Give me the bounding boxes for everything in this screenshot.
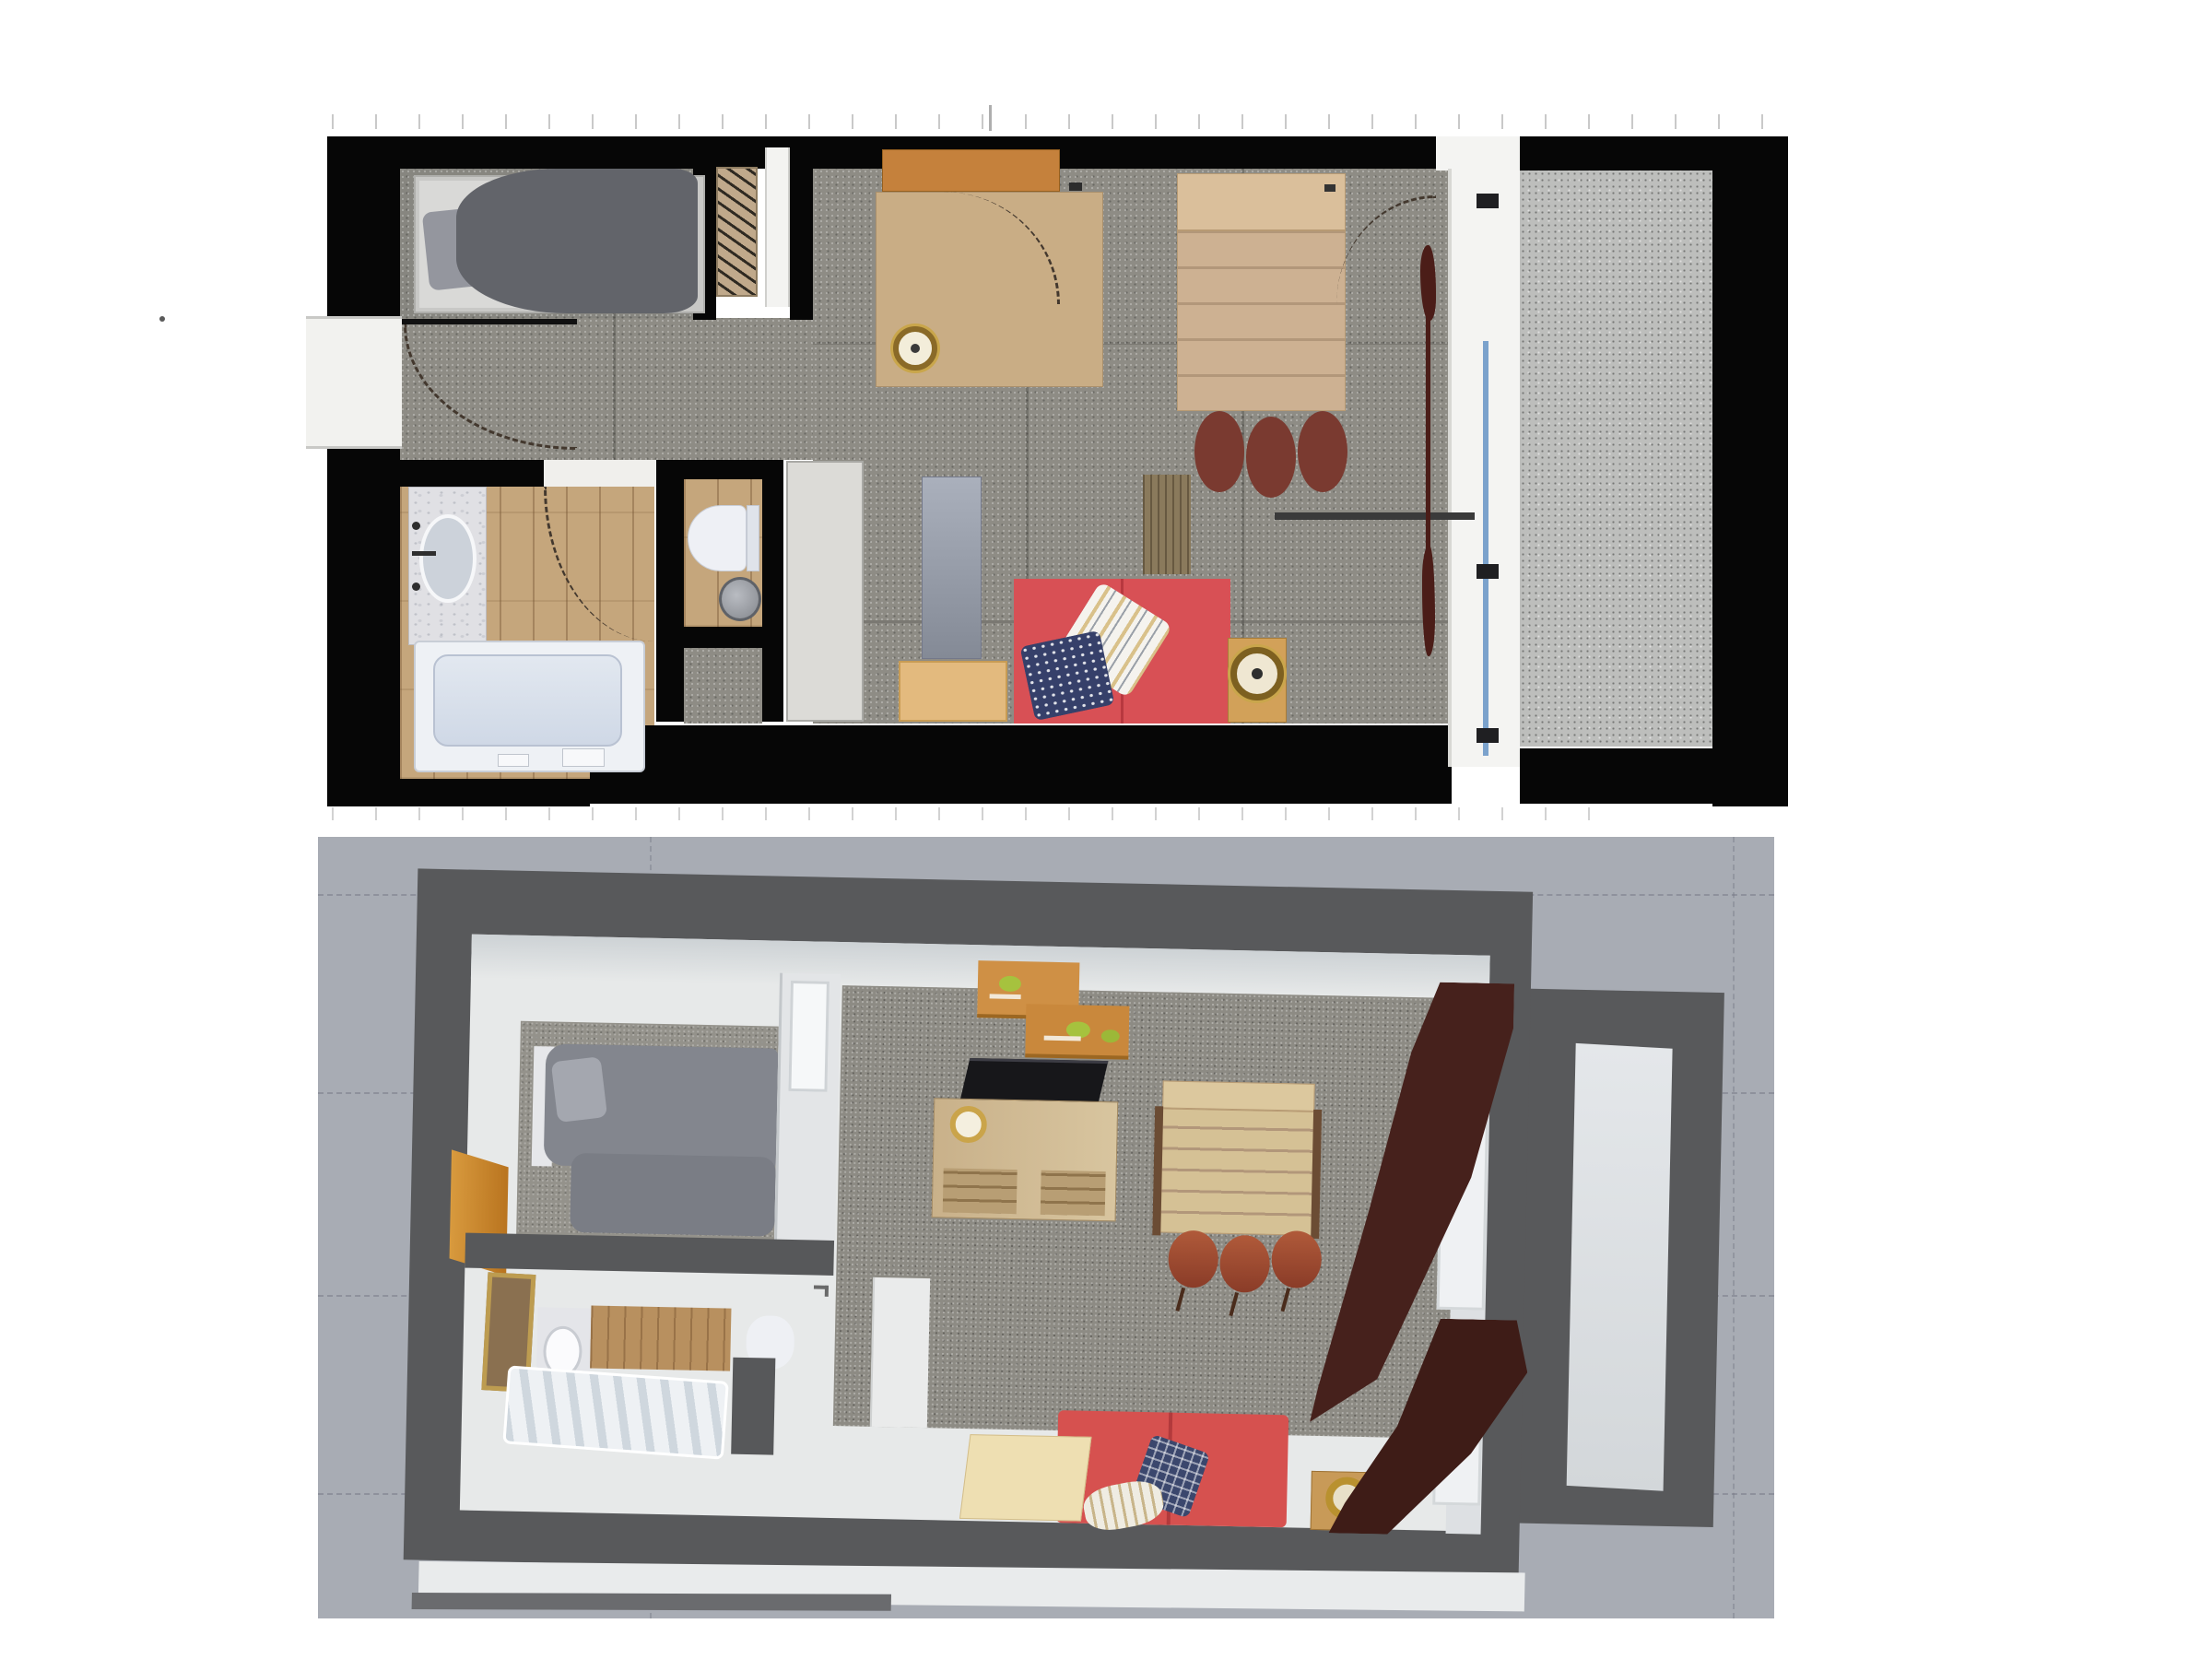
bathtub-3d [502,1365,729,1459]
bathroom-wall-top-left [400,460,544,487]
nook-notch-carpet [684,648,762,724]
door-handle-icon [1477,194,1499,208]
toilet-tank [747,505,759,571]
dining-table [1177,230,1346,411]
stool [1246,417,1296,498]
balcony-slab [1567,1043,1673,1491]
building-3d [0,809,2212,1659]
floor-plan-3d-view [0,829,2212,1659]
ceiling-mark [825,1286,829,1297]
coffee-table-3d [959,1434,1092,1522]
glass-line [1483,341,1488,756]
radiator [716,167,758,297]
bed-duvet-lower-3d [570,1153,776,1237]
stool [1298,411,1347,492]
bath-cabinet-3d [590,1305,731,1371]
brown-rug [1143,475,1191,574]
door-handle-icon [1477,564,1499,579]
vanity-sink [419,514,477,603]
toilet-nook-wall-bottom [662,627,783,648]
bathtub-basin [433,654,622,747]
stool [1194,411,1244,492]
wall-bottom-balcony [1520,748,1788,804]
faucet-handle [412,551,436,556]
left-wall-window [306,316,402,449]
coffee-table [899,661,1007,722]
curtain-line [1426,313,1430,553]
plant-3d [999,976,1021,992]
shelf-slot [990,994,1021,999]
desk-drawers-3d [1041,1171,1106,1216]
wall-bottom-living [590,725,1452,804]
wall-shelf [882,149,1060,192]
toilet-nook-wall-top [656,460,783,479]
balcony-glass-wall [1448,169,1520,767]
side-table-clock-center [1252,668,1263,679]
faucet-dot [412,582,420,591]
wardrobe-3d [870,1277,930,1428]
wardrobe-white [786,461,864,722]
alcove-partition-window [765,147,790,307]
faucet-dot [412,522,420,530]
desk-drawers-3d [943,1168,1018,1214]
shelf-mark [1069,182,1082,191]
ruler-ticks-bottom [332,807,1622,820]
bed-duvet [456,169,698,313]
bath-wall-stub-3d [731,1358,775,1455]
plant-3d [1101,1030,1120,1042]
table-mark [1324,184,1335,192]
alcove-wall-stub-right [790,136,813,320]
ruler-tick-long [989,105,992,131]
wall-right [1712,136,1788,806]
door-handle-icon [1477,728,1499,743]
entrance-door-gap [1436,136,1520,171]
floor-slab-shadow [412,1593,891,1611]
dining-table-3d [1159,1108,1314,1235]
waste-bin [719,577,761,621]
dining-table-header [1177,173,1346,230]
floor-plan-2d-view [0,0,2212,829]
wall-left [327,136,400,806]
stray-dot [159,316,165,322]
ruler-ticks-top [332,114,1788,129]
design-canvas [0,0,2212,1659]
partition-window-3d [788,981,829,1092]
toilet-nook-wall-left [656,460,684,722]
toilet-bowl [688,505,747,571]
desk-clock-center [911,344,920,353]
bathtub-faucet [562,748,605,767]
railing-line [1275,512,1475,520]
dining-table-3d-top [1162,1080,1315,1111]
mirror-panel [922,477,982,659]
toilet-nook-wall-right [762,479,783,722]
shelf-slot [1044,1036,1081,1041]
bathtub-faucet [498,754,529,767]
balcony-floor [1520,171,1712,747]
bathroom-door-gap [544,460,656,487]
wall-bottom-bathroom [327,779,590,806]
bed-pillow-3d [551,1056,607,1123]
